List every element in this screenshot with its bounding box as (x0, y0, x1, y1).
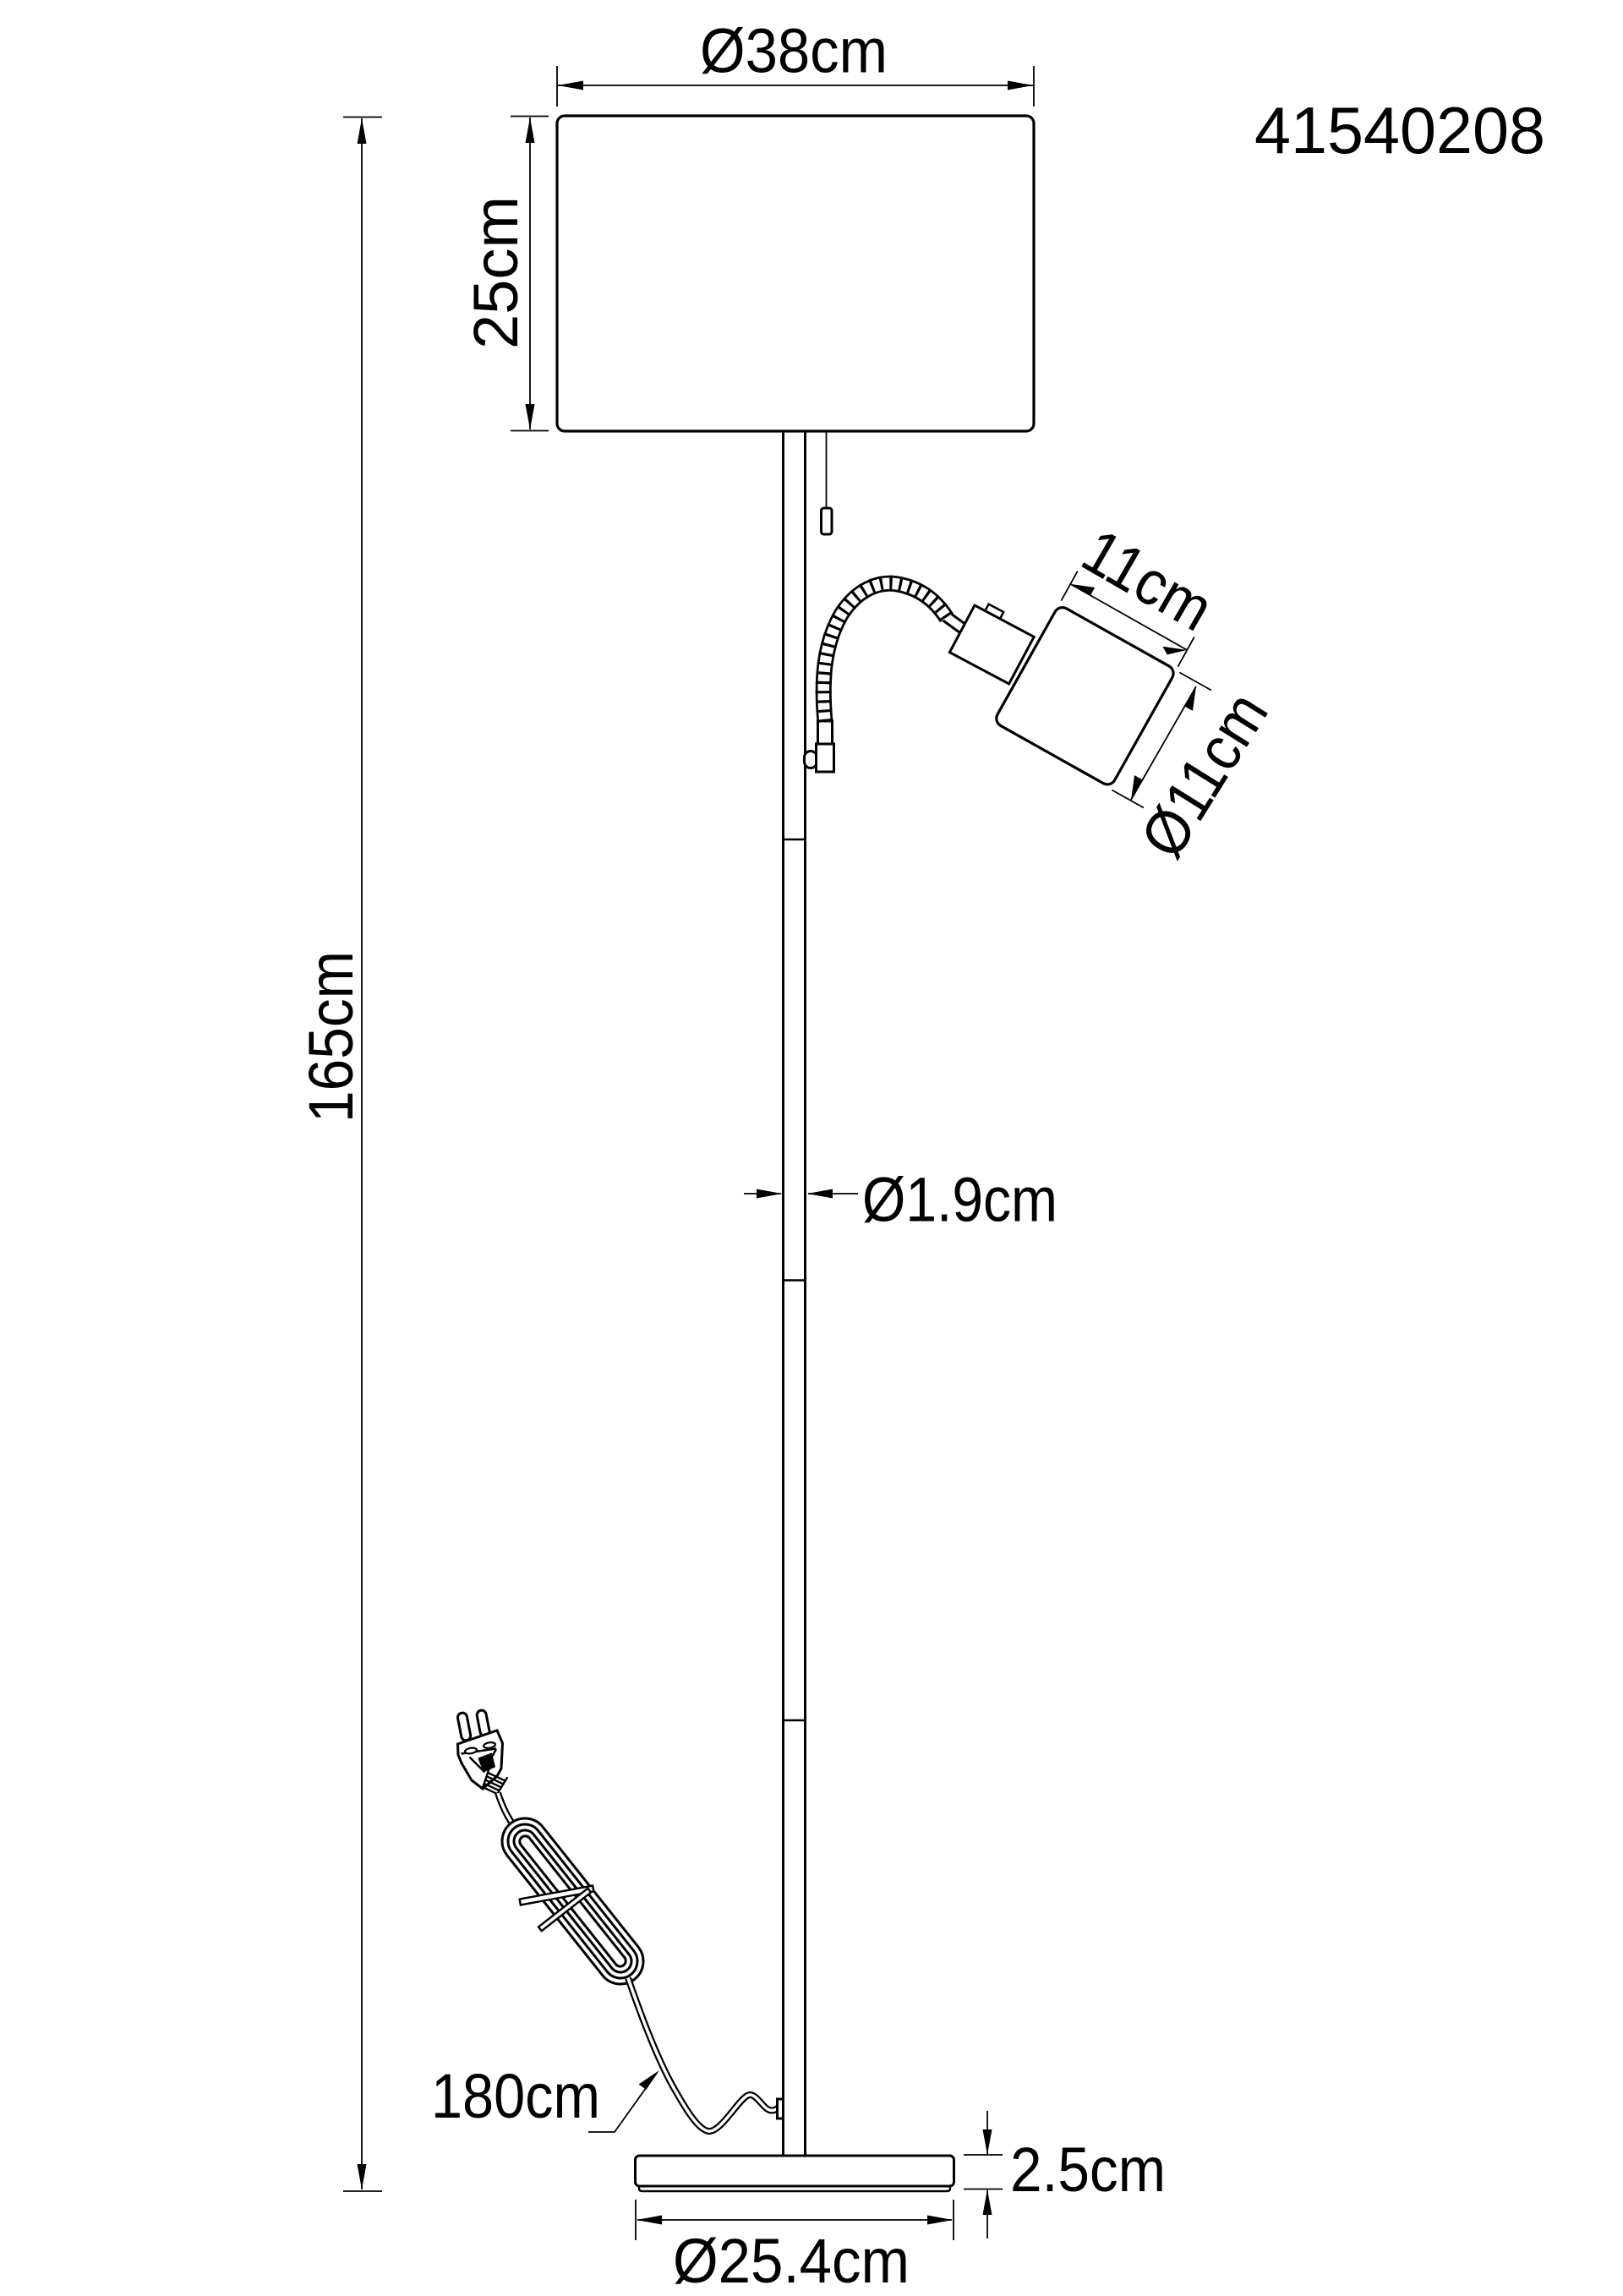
svg-text:165cm: 165cm (296, 951, 366, 1123)
svg-text:41540208: 41540208 (1254, 93, 1545, 167)
svg-text:Ø25.4cm: Ø25.4cm (673, 2226, 910, 2296)
svg-text:Ø38cm: Ø38cm (700, 16, 888, 86)
svg-text:Ø1.9cm: Ø1.9cm (862, 1165, 1057, 1235)
svg-text:180cm: 180cm (431, 2061, 600, 2131)
svg-text:25cm: 25cm (461, 196, 531, 349)
svg-text:2.5cm: 2.5cm (1010, 2135, 1166, 2205)
